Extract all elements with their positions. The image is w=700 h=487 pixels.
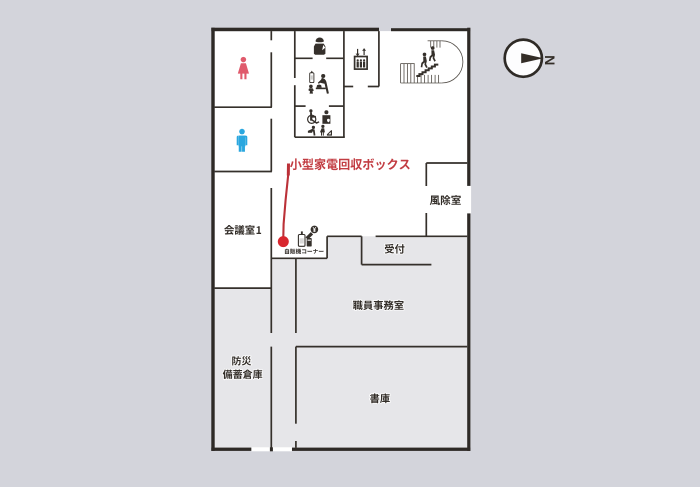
svg-text:N: N (541, 55, 557, 65)
